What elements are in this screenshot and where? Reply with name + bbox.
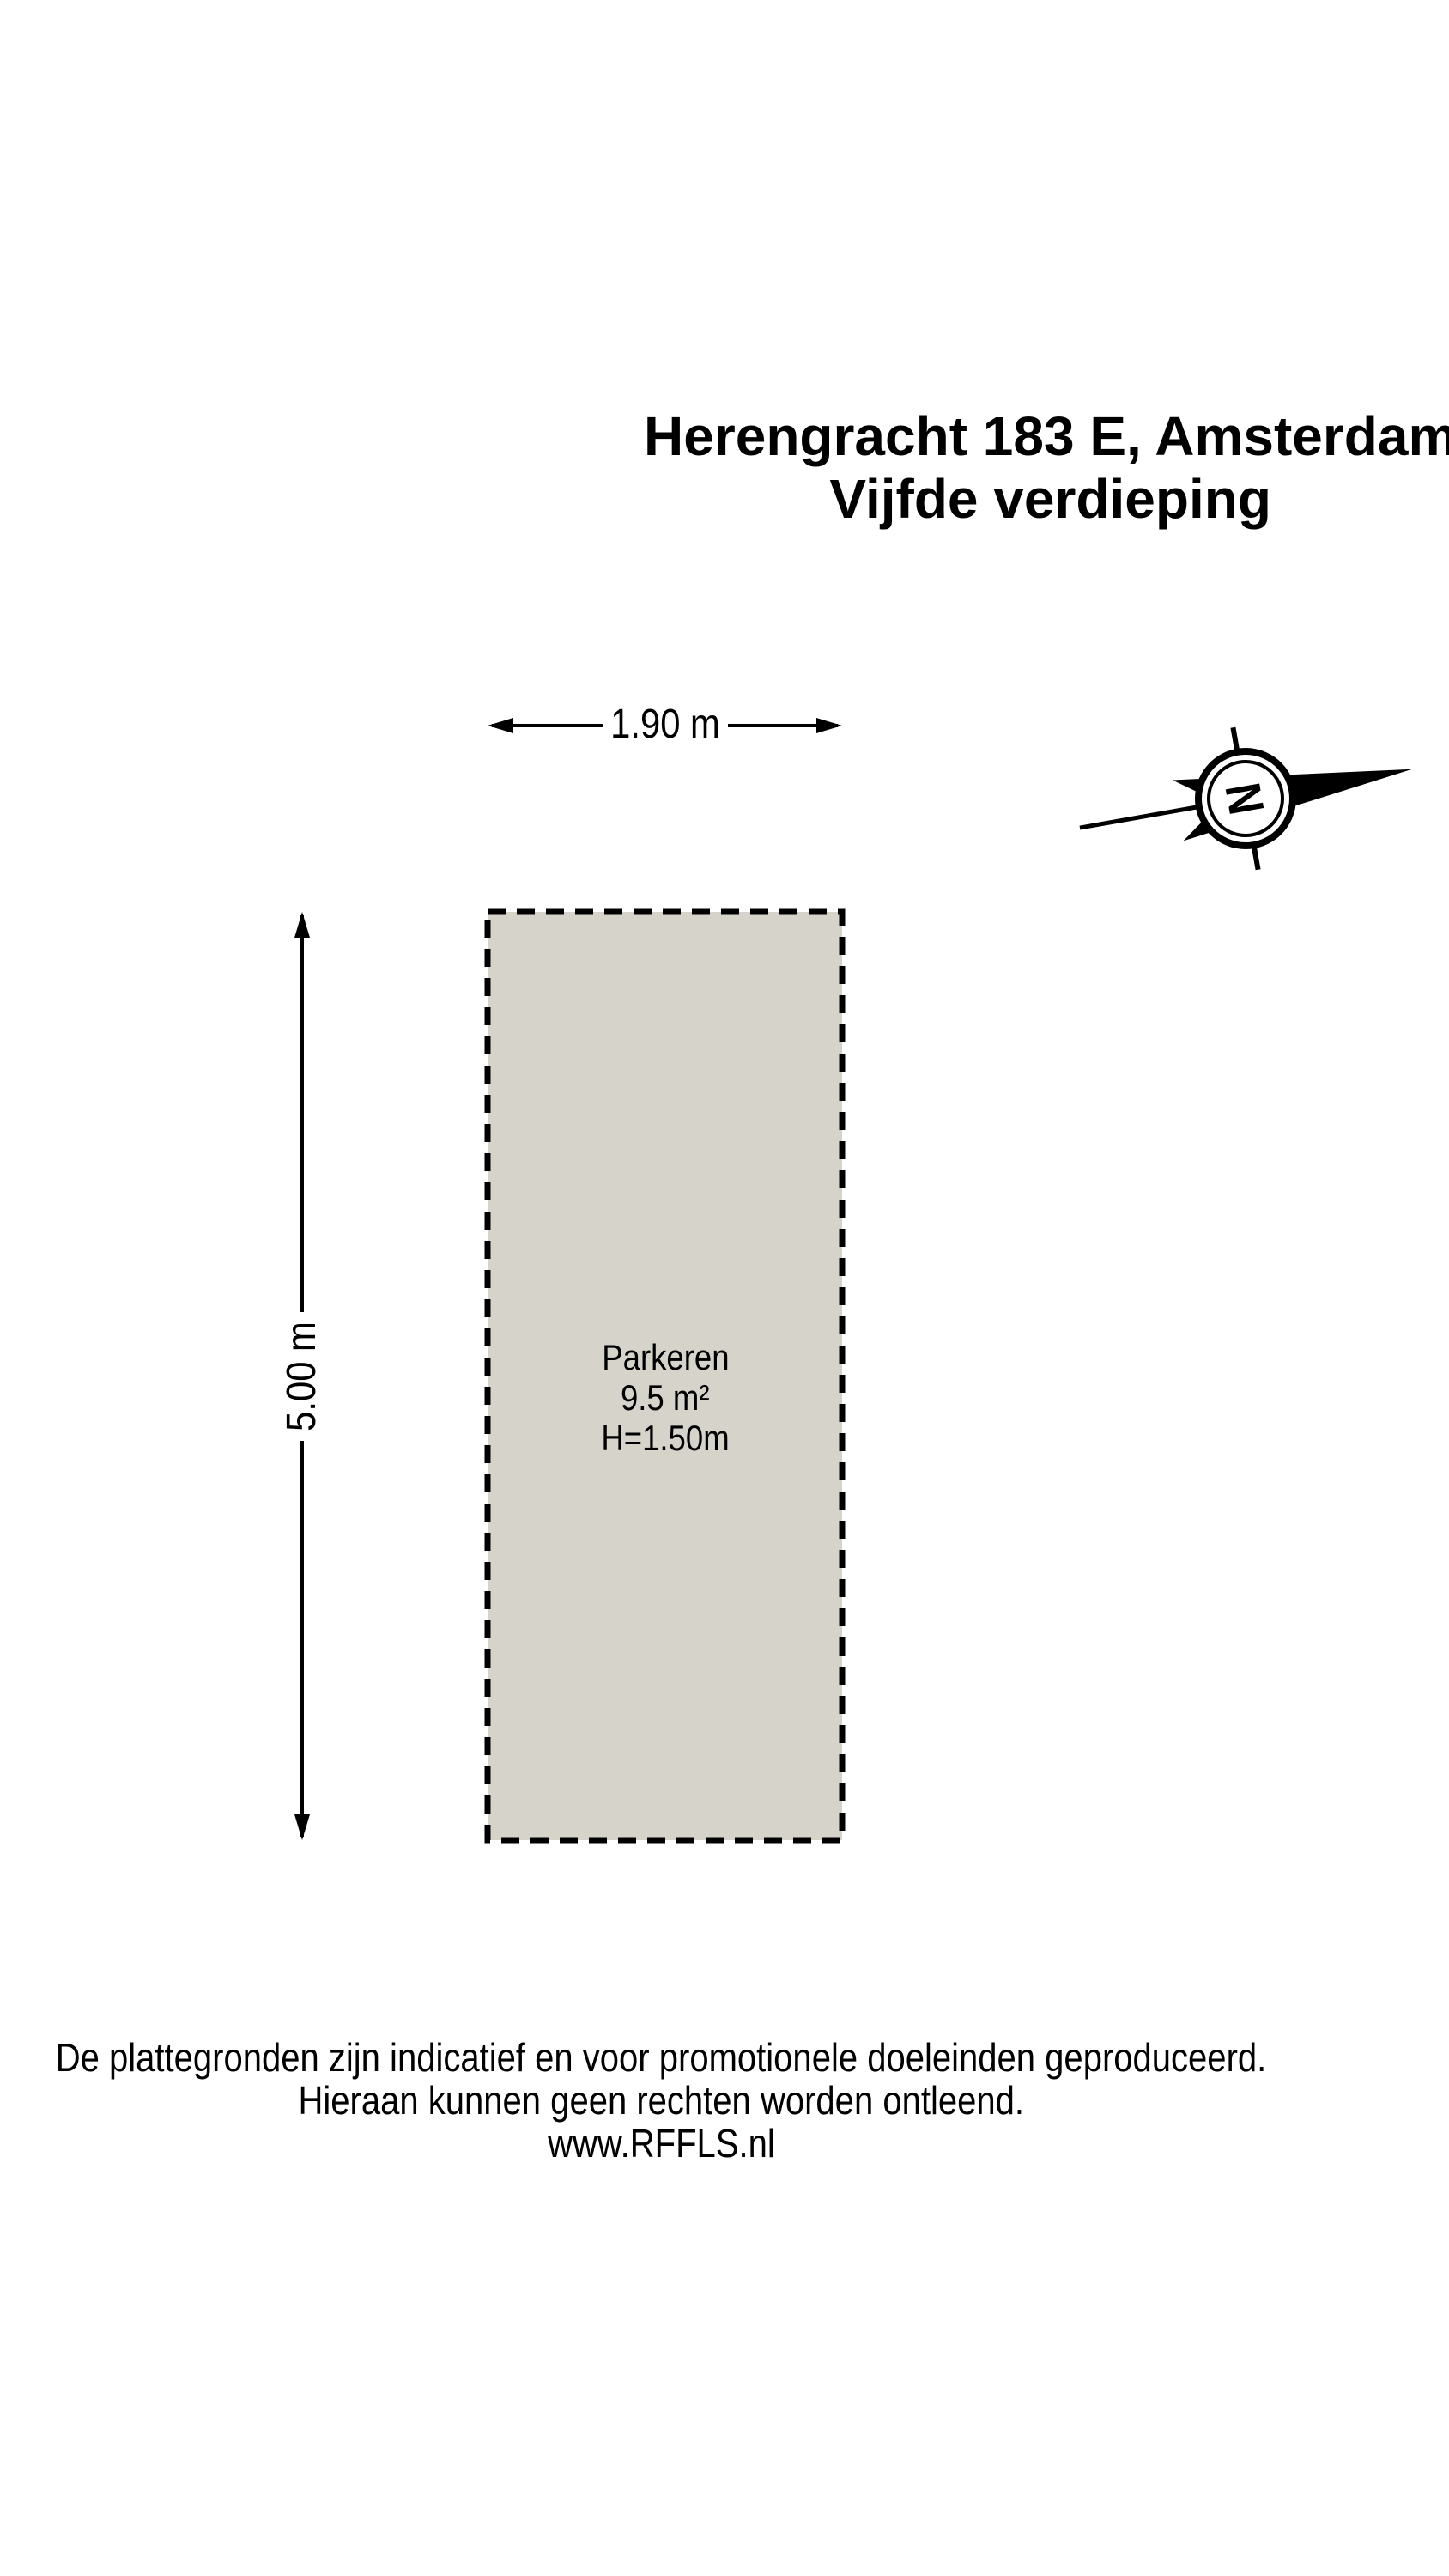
height-dimension-label: 5.00 m xyxy=(282,1314,323,1440)
floorplan-drawing: N xyxy=(0,0,1449,2576)
room-ceiling-height: H=1.50m xyxy=(591,1418,739,1458)
room-area: 9.5 m² xyxy=(591,1377,739,1418)
width-dimension-value: 1.90 m xyxy=(610,704,720,745)
width-arrow-left-icon xyxy=(488,718,513,733)
footer-website: www.RFFLS.nl xyxy=(0,2122,1357,2165)
footer-line2: Hieraan kunnen geen rechten worden ontle… xyxy=(0,2079,1357,2122)
width-arrow-right-icon xyxy=(816,718,842,733)
floorplan-page: Herengracht 183 E, Amsterdam Vijfde verd… xyxy=(0,0,1449,2576)
room-name: Parkeren xyxy=(591,1337,739,1377)
north-arrow-icon: N xyxy=(1067,698,1424,899)
height-arrow-top-icon xyxy=(294,912,310,938)
height-arrow-bottom-icon xyxy=(294,1814,310,1840)
width-dimension-label: 1.90 m xyxy=(603,704,729,745)
footer-disclaimer: De plattegronden zijn indicatief en voor… xyxy=(0,2036,1357,2165)
room-label-parkeren: Parkeren 9.5 m² H=1.50m xyxy=(591,1337,739,1458)
footer-line1: De plattegronden zijn indicatief en voor… xyxy=(0,2036,1357,2079)
height-dimension-value: 5.00 m xyxy=(282,1321,323,1431)
